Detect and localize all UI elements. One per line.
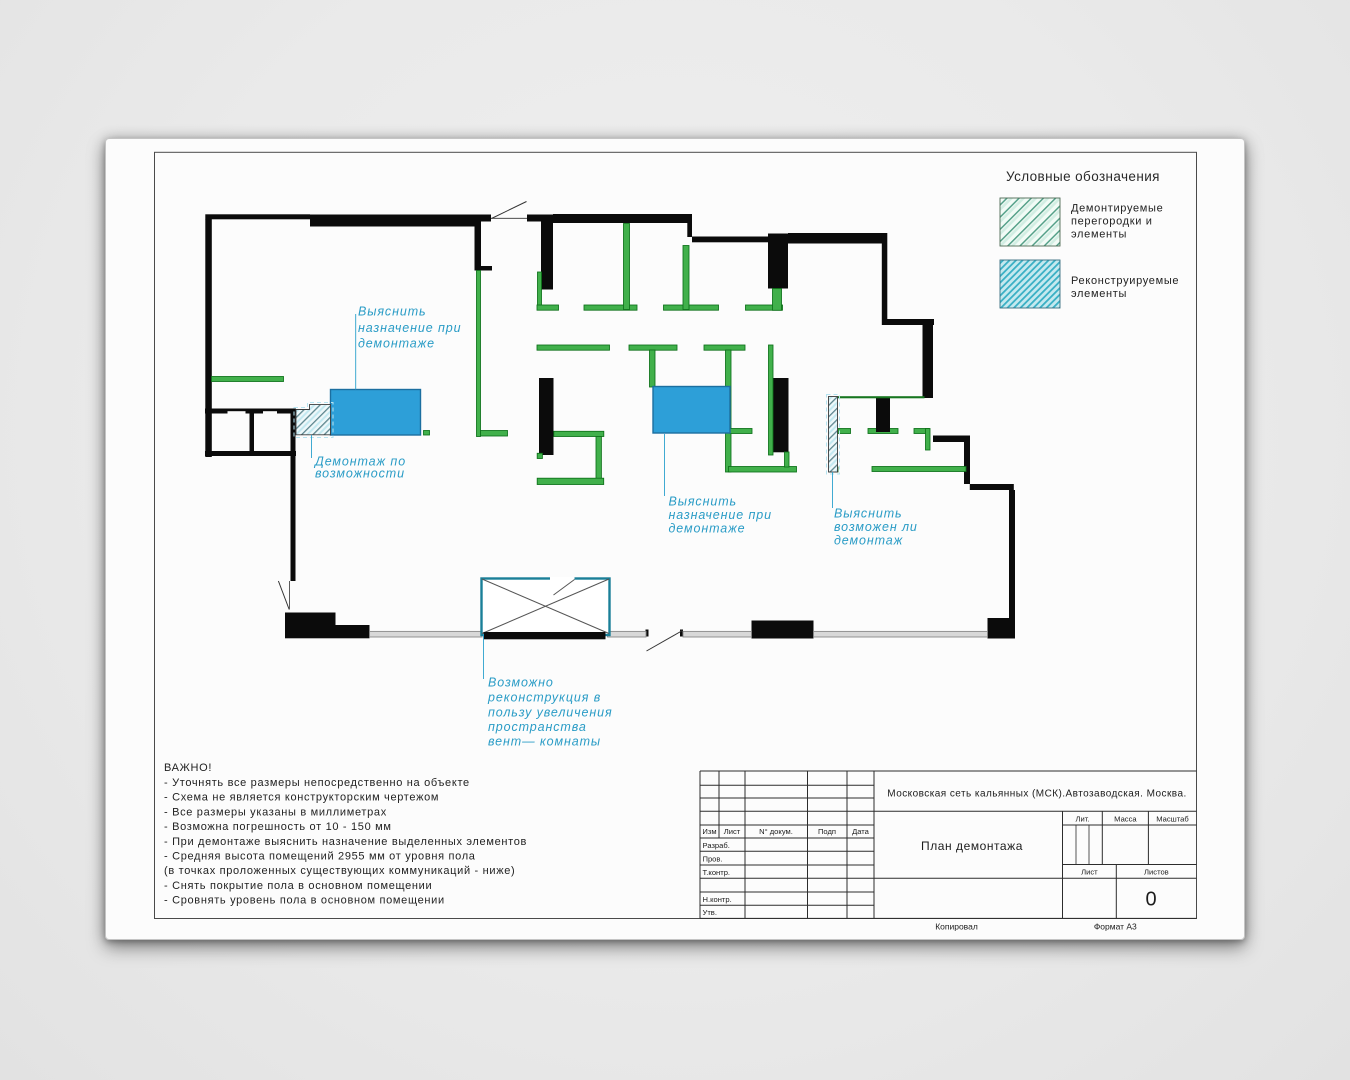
svg-text:N° докум.: N° докум. (759, 827, 793, 836)
svg-text:демонтаж: демонтаж (834, 534, 904, 548)
svg-text:возможности: возможности (315, 467, 405, 481)
svg-text:- Снять покрытие пола в основн: - Снять покрытие пола в основном помещен… (164, 880, 432, 892)
svg-text:ВАЖНО!: ВАЖНО! (164, 762, 212, 774)
svg-text:Масштаб: Масштаб (1156, 814, 1189, 823)
svg-text:Пров.: Пров. (703, 854, 723, 863)
svg-text:перегородки и: перегородки и (1071, 216, 1153, 228)
svg-text:Лит.: Лит. (1076, 814, 1090, 823)
svg-text:0: 0 (1145, 889, 1156, 911)
svg-text:пользу увеличения: пользу увеличения (488, 706, 613, 720)
svg-text:Условные обозначения: Условные обозначения (1006, 169, 1160, 184)
svg-text:План демонтажа: План демонтажа (921, 839, 1023, 853)
svg-text:Утв.: Утв. (703, 908, 717, 917)
svg-text:Формат А3: Формат А3 (1094, 922, 1137, 932)
svg-text:Разраб.: Разраб. (703, 841, 730, 850)
svg-text:Копировал: Копировал (935, 922, 978, 932)
svg-text:- Схема не является конструкто: - Схема не является конструкторским черт… (164, 792, 439, 804)
svg-text:- При демонтаже выяснить назна: - При демонтаже выяснить назначение выде… (164, 836, 527, 848)
svg-text:вент— комнаты: вент— комнаты (488, 735, 601, 749)
svg-text:Демонтируемые: Демонтируемые (1071, 203, 1163, 215)
svg-text:назначение при: назначение при (669, 508, 772, 522)
svg-text:Выяснить: Выяснить (358, 305, 426, 319)
svg-text:элементы: элементы (1071, 229, 1127, 241)
svg-text:реконструкция в: реконструкция в (487, 691, 601, 705)
svg-text:демонтаже: демонтаже (669, 522, 746, 536)
svg-text:- Все размеры указаны в миллим: - Все размеры указаны в миллиметрах (164, 806, 387, 818)
svg-text:элементы: элементы (1071, 288, 1127, 300)
svg-text:Возможно: Возможно (488, 676, 554, 690)
svg-text:Подп: Подп (818, 827, 836, 836)
svg-text:Дата: Дата (852, 827, 870, 836)
svg-text:Выяснить: Выяснить (834, 507, 902, 521)
svg-text:Реконструируемые: Реконструируемые (1071, 275, 1179, 287)
svg-text:(в точках проложенных существу: (в точках проложенных существующих комму… (164, 865, 515, 877)
svg-text:Изм: Изм (702, 827, 716, 836)
svg-text:демонтаже: демонтаже (358, 337, 435, 351)
svg-text:Масса: Масса (1114, 814, 1137, 823)
svg-text:- Сровнять уровень пола в осно: - Сровнять уровень пола в основном помещ… (164, 895, 445, 907)
svg-text:возможен ли: возможен ли (834, 520, 918, 534)
svg-text:Лист: Лист (724, 827, 741, 836)
svg-text:назначение при: назначение при (358, 321, 461, 335)
svg-text:пространства: пространства (488, 720, 587, 734)
svg-text:Выяснить: Выяснить (669, 495, 737, 509)
svg-text:- Уточнять все размеры непосре: - Уточнять все размеры непосредственно н… (164, 777, 470, 789)
svg-text:Московская сеть кальянных (МСК: Московская сеть кальянных (МСК).Автозаво… (887, 789, 1186, 800)
svg-text:- Возможна погрешность от 10 -: - Возможна погрешность от 10 - 150 мм (164, 821, 392, 833)
svg-text:Н.контр.: Н.контр. (703, 895, 732, 904)
svg-text:Лист: Лист (1081, 867, 1098, 876)
svg-text:- Средняя высота помещений 295: - Средняя высота помещений 2955 мм от ур… (164, 851, 476, 863)
svg-text:Т.контр.: Т.контр. (703, 868, 731, 877)
svg-text:Листов: Листов (1144, 867, 1169, 876)
